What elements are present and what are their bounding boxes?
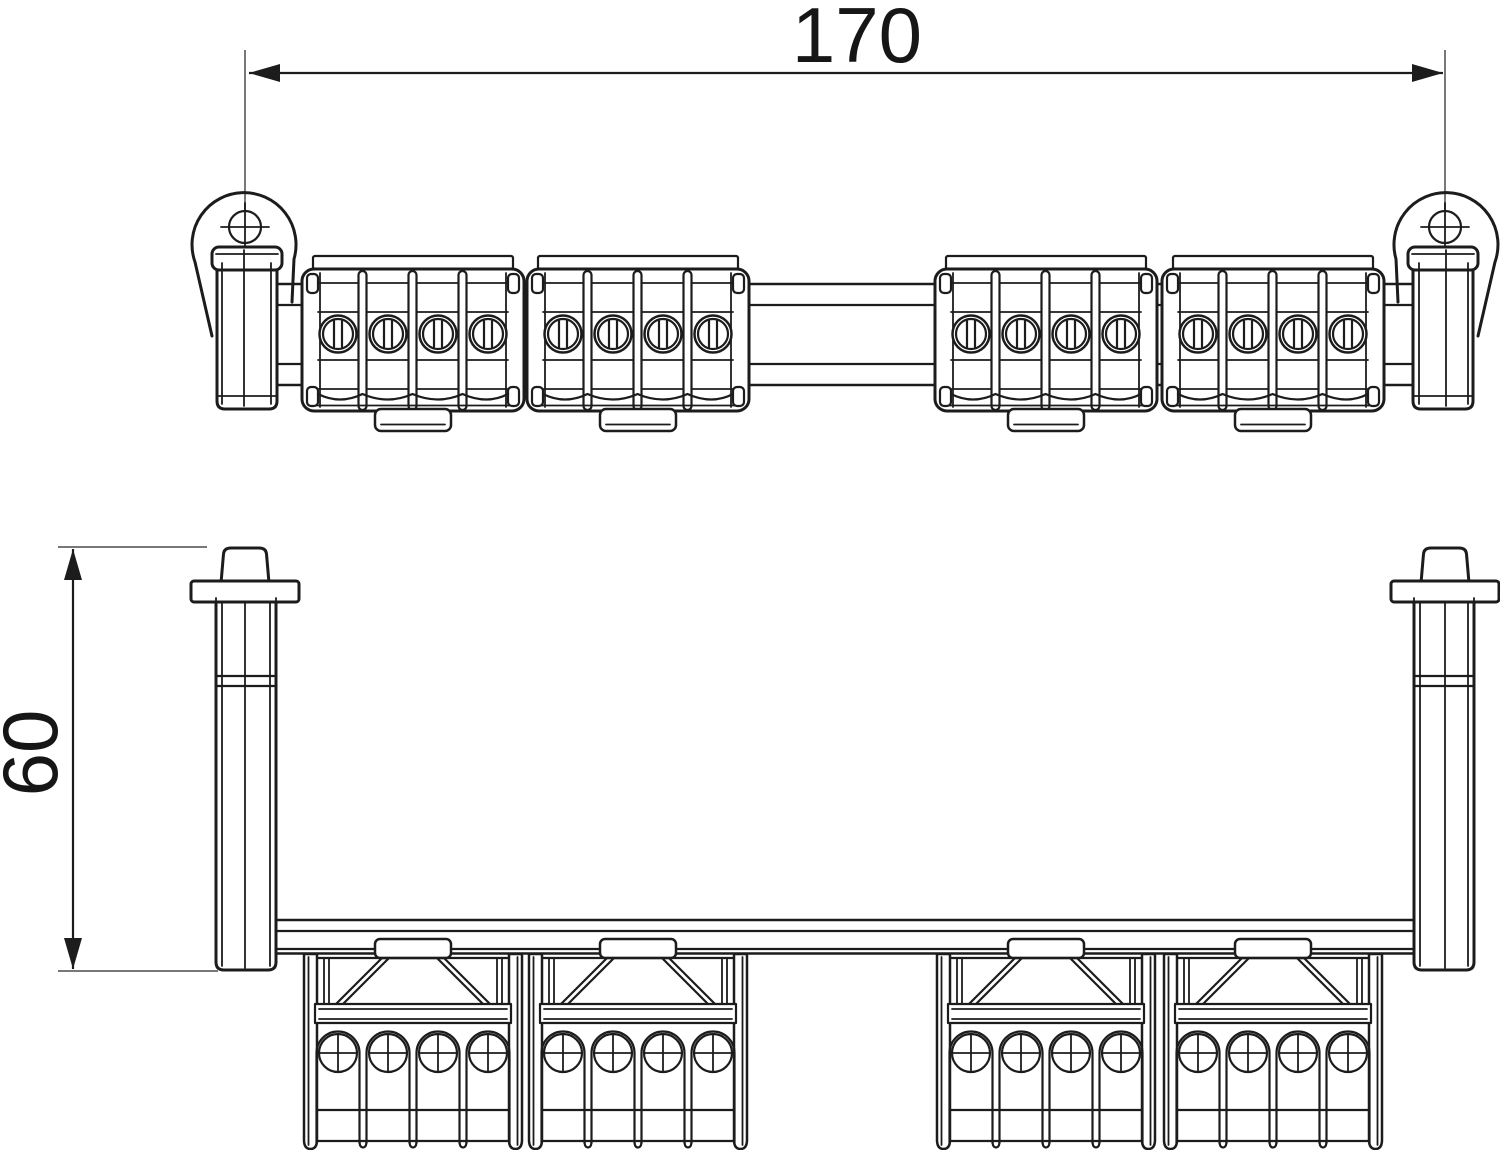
technical-drawing-page: 170 60 bbox=[0, 0, 1500, 1150]
dimension-height-label: 60 bbox=[0, 710, 74, 797]
arrowhead-left bbox=[249, 64, 280, 82]
dimension-height: 60 bbox=[0, 547, 218, 971]
terminal-block-2 bbox=[527, 256, 749, 431]
clamp-block-3 bbox=[937, 939, 1155, 1149]
plan-view bbox=[192, 193, 1498, 431]
terminal-block-3 bbox=[935, 256, 1157, 431]
technical-drawing: 170 60 bbox=[0, 0, 1500, 1150]
arrowhead-down bbox=[64, 938, 82, 969]
dimension-width-label: 170 bbox=[792, 0, 922, 79]
arrowhead-right bbox=[1412, 64, 1443, 82]
arrowhead-up bbox=[64, 549, 82, 580]
terminal-block-1 bbox=[302, 256, 524, 431]
clamp-block-1 bbox=[304, 939, 522, 1149]
post-right-plan bbox=[1408, 247, 1478, 409]
front-view bbox=[191, 548, 1499, 1149]
post-left-front bbox=[191, 548, 299, 970]
post-left-plan bbox=[212, 247, 282, 409]
terminal-block-4 bbox=[1162, 256, 1384, 431]
dimension-width: 170 bbox=[245, 0, 1445, 210]
post-right-front bbox=[1391, 548, 1499, 970]
clamp-block-4 bbox=[1164, 939, 1382, 1149]
clamp-block-2 bbox=[529, 939, 747, 1149]
